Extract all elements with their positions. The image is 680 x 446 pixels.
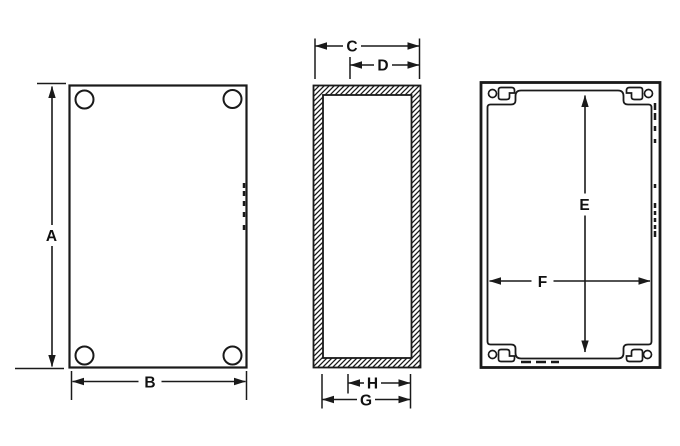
- dim-A-label: A: [46, 228, 57, 245]
- drawing-background: [0, 0, 680, 446]
- dim-C-label: C: [346, 39, 357, 56]
- dim-H-label: H: [367, 376, 378, 393]
- page: A B C D: [0, 0, 680, 446]
- enclosure-dimension-drawing: A B C D: [0, 0, 680, 446]
- dim-D-label: D: [377, 58, 388, 75]
- dim-F-label: F: [538, 274, 547, 291]
- dim-B-label: B: [144, 375, 155, 392]
- dim-E-label: E: [579, 197, 589, 214]
- dim-G-label: G: [360, 393, 372, 410]
